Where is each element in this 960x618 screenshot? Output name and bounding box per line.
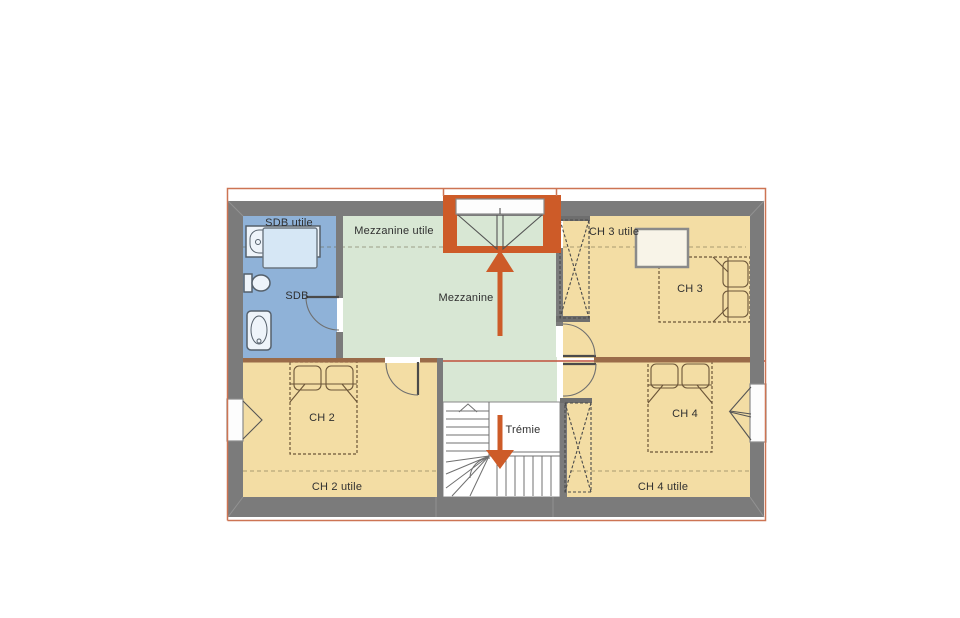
doorway-ch4 — [557, 363, 563, 398]
label-tremie: Trémie — [505, 424, 540, 436]
label-ch4: CH 4 — [672, 408, 698, 420]
wall-stair-ch4 — [560, 398, 567, 497]
sink — [247, 311, 271, 350]
floor-plan-page: SDB utile Mezzanine utile CH 3 utile SDB… — [0, 0, 960, 618]
label-ch2-utile: CH 2 utile — [312, 481, 362, 493]
label-mezzanine-utile: Mezzanine utile — [354, 225, 433, 237]
label-ch3: CH 3 — [677, 283, 703, 295]
label-mezzanine: Mezzanine — [439, 292, 494, 304]
doorway-ch2 — [385, 357, 420, 363]
closet-ch3-bottom-cap — [556, 316, 590, 322]
partition-ch3-ch4 — [594, 357, 750, 363]
floor-plan-drawing — [0, 0, 960, 618]
closet-ch4-top-cap — [560, 398, 592, 403]
label-ch4-utile: CH 4 utile — [638, 481, 688, 493]
toilet — [244, 274, 270, 292]
wall-sdb-right-upper — [336, 216, 343, 298]
partition-ch2-right — [420, 358, 437, 363]
doorway-ch3 — [556, 326, 563, 357]
label-sdb-utile: SDB utile — [265, 217, 313, 229]
label-ch3-utile: CH 3 utile — [589, 226, 639, 238]
wall-sdb-right-lower — [336, 332, 343, 360]
wall-ch2-stairwell — [437, 358, 443, 497]
room-ch2 — [243, 362, 437, 497]
dormer-jamb-right — [543, 195, 561, 253]
room-mezzanine-landing — [443, 360, 557, 402]
label-sdb: SDB — [285, 290, 308, 302]
dormer-bay-floor — [457, 214, 543, 247]
dormer-jamb-left — [443, 195, 457, 253]
furniture-ch3-dresser — [636, 229, 688, 267]
partition-ch2-left — [243, 358, 385, 363]
label-ch2: CH 2 — [309, 412, 335, 424]
